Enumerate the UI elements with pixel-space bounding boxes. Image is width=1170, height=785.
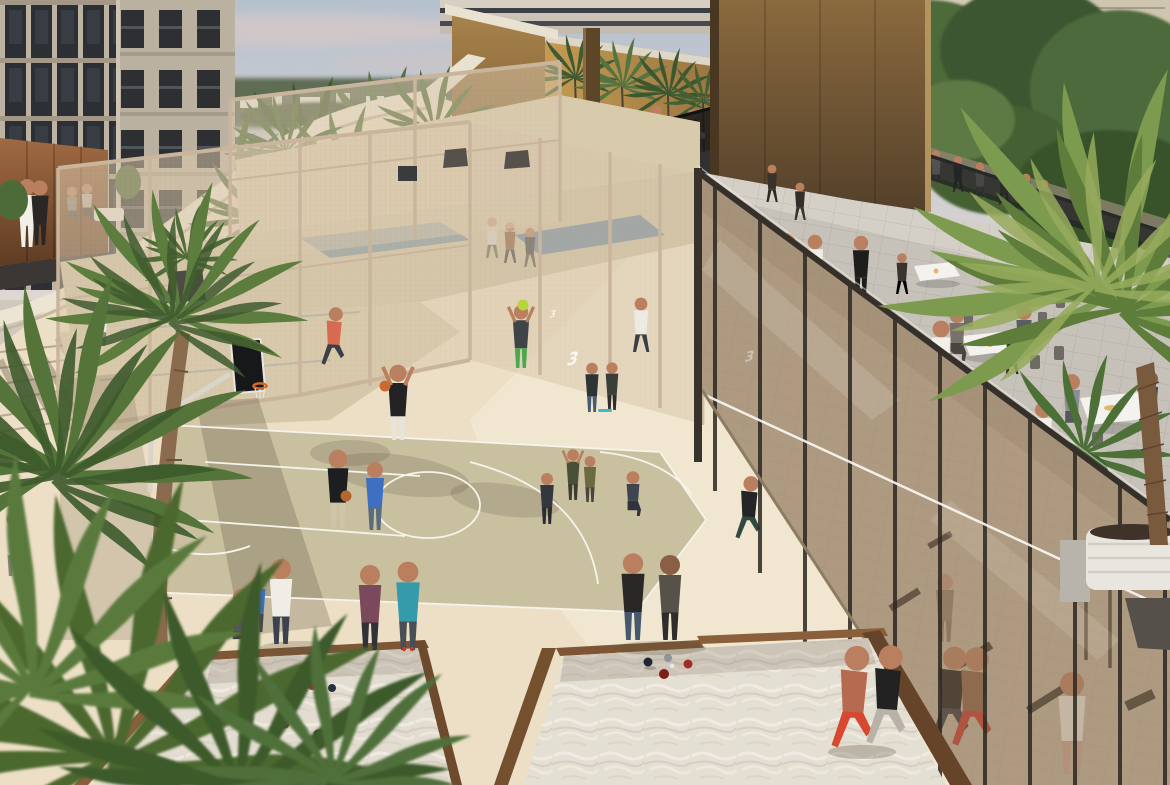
equipment-box	[398, 166, 417, 181]
planter	[504, 150, 530, 169]
rendering-canvas: 3 3	[0, 0, 1170, 785]
basketball	[380, 381, 391, 392]
dining-table	[914, 262, 960, 288]
planter	[443, 148, 468, 168]
skateboard	[598, 409, 612, 412]
scene: 3 3	[0, 0, 1170, 785]
glass-corner-post	[694, 168, 702, 462]
